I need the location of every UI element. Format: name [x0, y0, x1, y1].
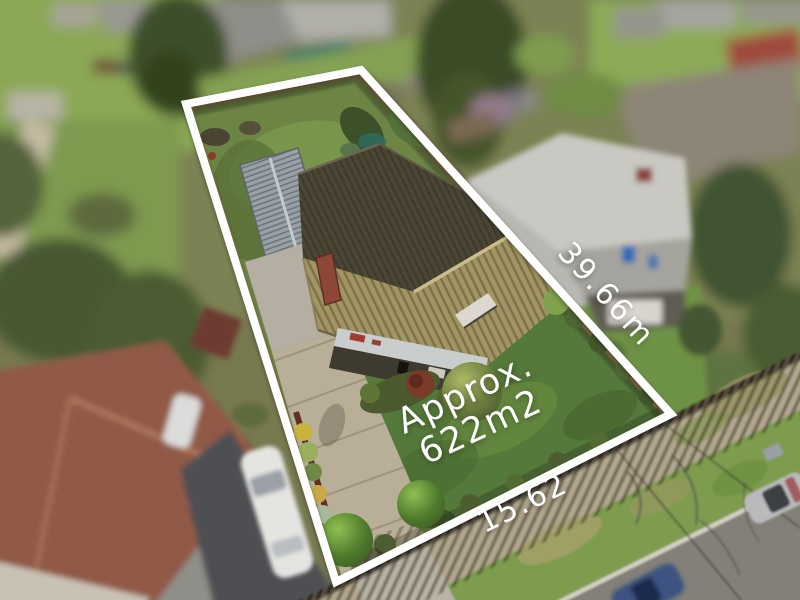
round-garden-bush: [442, 362, 502, 422]
property-aerial-photo: Approx. 622m2 39.66m 15.62: [0, 0, 800, 600]
aerial-photo-art: [0, 0, 800, 600]
